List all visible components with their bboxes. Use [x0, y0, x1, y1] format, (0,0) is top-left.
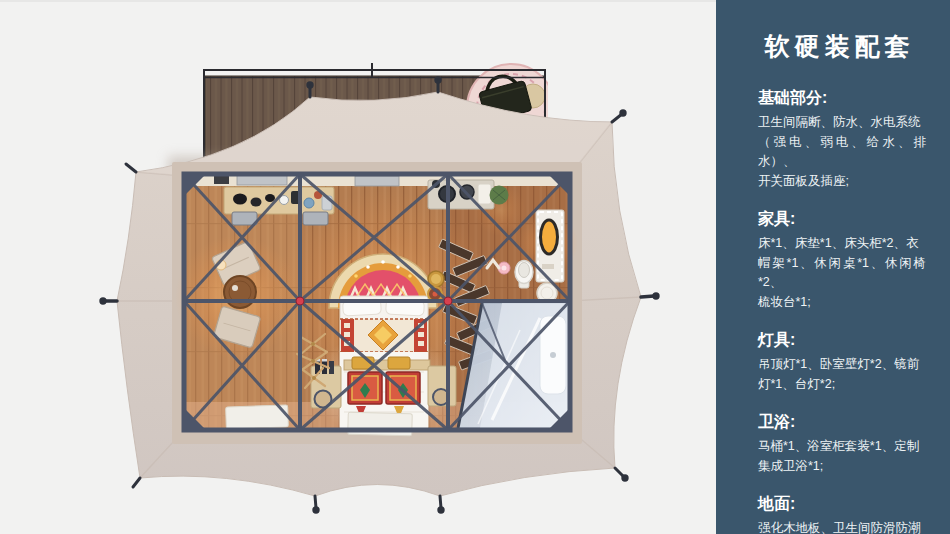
nightstand: [428, 366, 456, 406]
section-body: 强化木地板、卫生间防滑防潮 石塑板;: [758, 519, 926, 534]
section-bathroom: 卫浴: 马桶*1、浴室柜套装*1、定制 集成卫浴*1;: [758, 412, 926, 476]
page: 软硬装配套 基础部分: 卫生间隔断、防水、水电系统 （强电、弱电、给水、排水）、…: [0, 0, 950, 534]
frame-connector: [444, 297, 452, 305]
section-heading: 基础部分:: [758, 88, 926, 109]
vanity-mirror: [541, 220, 558, 254]
plant: [490, 186, 509, 205]
floorplan-render: [0, 0, 716, 534]
section-flooring: 地面: 强化木地板、卫生间防滑防潮 石塑板;: [758, 494, 926, 534]
panel-title: 软硬装配套: [753, 30, 926, 63]
section-lighting: 灯具: 吊顶灯*1、卧室壁灯*2、镜前 灯*1、台灯*2;: [758, 330, 926, 394]
painted-chest: [348, 372, 382, 404]
brass-tray-inner: [431, 274, 441, 284]
section-heading: 卫浴:: [758, 412, 926, 433]
section-basics: 基础部分: 卫生间隔断、防水、水电系统 （强电、弱电、给水、排水）、 开关面板及…: [758, 88, 926, 191]
spec-panel: 软硬装配套 基础部分: 卫生间隔断、防水、水电系统 （强电、弱电、给水、排水）、…: [716, 0, 950, 534]
section-body: 马桶*1、浴室柜套装*1、定制 集成卫浴*1;: [758, 437, 926, 476]
floorplan-svg: [0, 0, 716, 534]
section-heading: 灯具:: [758, 330, 926, 351]
section-body: 床*1、床垫*1、床头柜*2、衣 帽架*1、休闲桌*1、休闲椅*2、 梳妆台*1…: [758, 234, 926, 312]
leisure-desk: [224, 187, 334, 214]
desk-chair: [303, 212, 328, 225]
section-heading: 家具:: [758, 209, 926, 230]
section-body: 吊顶灯*1、卧室壁灯*2、镜前 灯*1、台灯*2;: [758, 355, 926, 394]
section-heading: 地面:: [758, 494, 926, 515]
frame-connector: [296, 297, 304, 305]
section-furniture: 家具: 床*1、床垫*1、床头柜*2、衣 帽架*1、休闲桌*1、休闲椅*2、 梳…: [758, 209, 926, 312]
section-body: 卫生间隔断、防水、水电系统 （强电、弱电、给水、排水）、 开关面板及插座;: [758, 113, 926, 191]
ceiling-vent: [355, 176, 399, 186]
leisure-table: [224, 276, 256, 308]
